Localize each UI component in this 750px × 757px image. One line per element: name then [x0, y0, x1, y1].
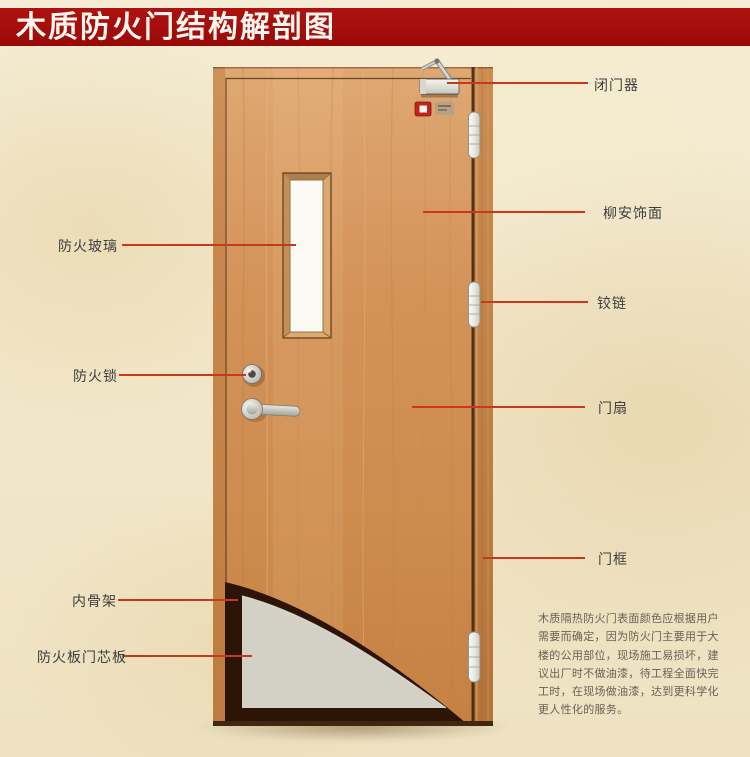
leader-line-fire-board-core	[122, 655, 252, 657]
label-hinge: 铰链	[597, 293, 627, 313]
description-paragraph: 木质隔热防火门表面颜色应根据用户 需要而确定，因为防火门主要用于大 楼的公用部位…	[538, 610, 719, 720]
infographic-page: 木质防火门结构解剖图	[0, 0, 750, 757]
hinge-middle	[469, 282, 481, 327]
label-inner-skeleton: 内骨架	[72, 591, 117, 611]
hinge-bottom	[469, 632, 481, 682]
description-line: 更人性化的服务。	[538, 701, 719, 719]
label-lauan-veneer: 柳安饰面	[603, 203, 663, 223]
label-door-frame: 门框	[598, 549, 628, 569]
leader-line-fire-lock	[119, 374, 246, 376]
description-line: 楼的公用部位，现场施工易损坏，建	[538, 647, 719, 665]
description-line: 议出厂时不做油漆，待工程全面快完	[538, 665, 719, 683]
door-bottom-edge	[213, 721, 493, 726]
label-door-leaf: 门扇	[598, 398, 628, 418]
fire-glass-window	[283, 173, 331, 338]
leader-line-hinge	[481, 301, 588, 303]
title-banner: 木质防火门结构解剖图	[0, 8, 750, 46]
leader-line-door-frame	[483, 557, 585, 559]
leader-line-fire-glass	[122, 244, 296, 246]
leader-line-inner-skeleton	[118, 599, 238, 601]
alarm-indicator	[415, 102, 431, 116]
label-door-closer: 闭门器	[594, 75, 639, 95]
label-fire-glass: 防火玻璃	[58, 236, 118, 256]
page-title: 木质防火门结构解剖图	[0, 8, 750, 47]
leader-line-door-closer	[447, 82, 588, 84]
description-line: 需要而确定，因为防火门主要用于大	[538, 628, 719, 646]
hinge-top	[469, 112, 481, 158]
label-fire-board-core: 防火板门芯板	[37, 647, 127, 667]
spec-tag	[435, 102, 454, 115]
description-line: 木质隔热防火门表面颜色应根据用户	[538, 610, 719, 628]
label-fire-lock: 防火锁	[73, 366, 118, 386]
leader-line-door-leaf	[412, 406, 585, 408]
fire-door-illustration	[213, 55, 493, 730]
leader-line-lauan-veneer	[423, 211, 585, 213]
description-line: 工时，在现场做油漆，达到更科学化	[538, 683, 719, 701]
